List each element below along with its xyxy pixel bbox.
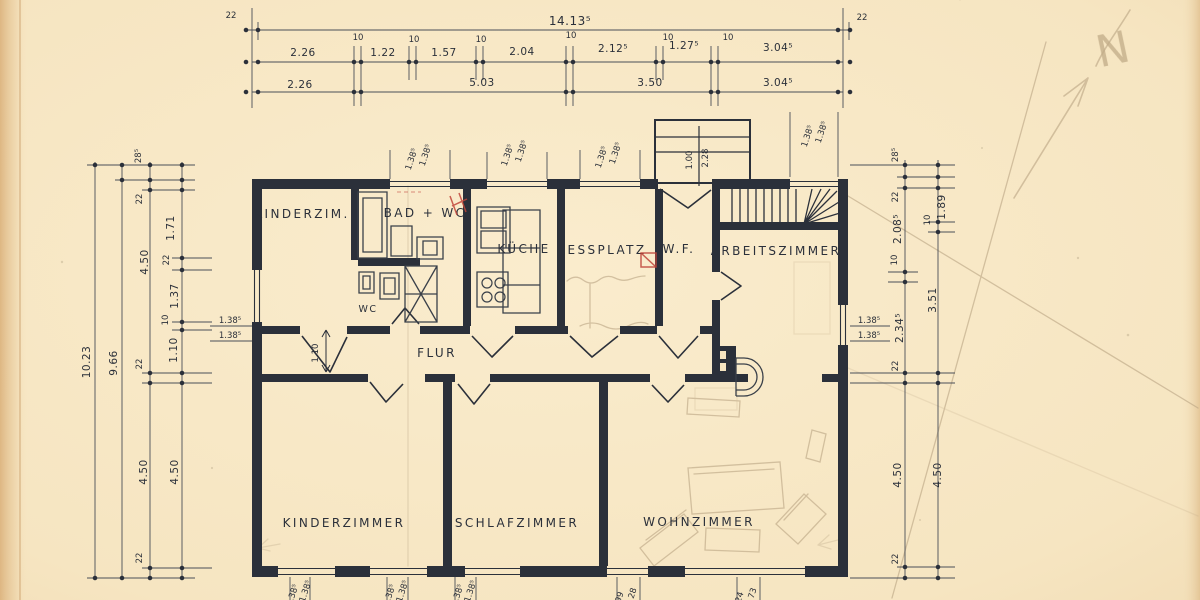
dim-row2-2: 1.57 <box>431 47 456 59</box>
scanned-floorplan-sheet: N 1.00 2.28 1.10 22 22 14.13⁵ 2.26 1.22 … <box>0 0 1200 600</box>
dim-row2-4: 2.12⁵ <box>598 43 628 55</box>
room-label-arbeitszimmer: ARBEITSZIMMER <box>711 244 841 258</box>
dim-right-e1: 22 <box>891 192 901 203</box>
dim-left-d2: 1.37 <box>169 283 181 308</box>
win-left-b: 1.38⁵ <box>219 331 241 341</box>
dim-right-f1: 10 <box>923 215 933 226</box>
room-label-kinderzim: KINDERZIM. <box>254 207 349 221</box>
dim-row2-0: 2.26 <box>290 47 315 59</box>
dim-row3-3: 3.04⁵ <box>763 77 793 89</box>
dim-row3-2: 3.50 <box>637 77 662 89</box>
dim-row2-1: 1.22 <box>370 47 395 59</box>
room-label-essplatz: ESSPLATZ <box>567 243 646 257</box>
room-label-wc: WC <box>358 304 377 315</box>
room-label-wf: W.F. <box>663 242 696 256</box>
dim-row2-3: 2.04 <box>509 46 534 58</box>
dim-right-e2: 2.08⁵ <box>892 214 904 244</box>
scan-edge-left <box>0 0 28 600</box>
porch-dim-b: 2.28 <box>701 149 711 168</box>
room-label-kueche: KÜCHE <box>497 240 550 256</box>
dim-row3-1: 5.03 <box>469 77 494 89</box>
dim-right-f0: 1.89 <box>936 194 948 219</box>
dim-right-e5: 22 <box>891 361 901 372</box>
dim-left-d4: 1.10 <box>168 337 180 362</box>
dim-row3-0: 2.26 <box>287 79 312 91</box>
dim-ten-3: 10 <box>566 31 577 41</box>
room-label-flur: FLUR <box>417 346 457 360</box>
dim-row2-6: 3.04⁵ <box>763 42 793 54</box>
dim-right-e6: 4.50 <box>892 462 904 487</box>
dim-row2-5: 1.27⁵ <box>669 40 699 52</box>
dim-ten-0: 10 <box>353 33 364 43</box>
dim-ten-5: 10 <box>723 33 734 43</box>
room-label-schlafzimmer: SCHLAFZIMMER <box>455 516 579 530</box>
flur-clearance-label: 1.10 <box>311 344 321 363</box>
dim-left-total: 10.23 <box>81 346 93 379</box>
dim-right-e7: 22 <box>891 554 901 565</box>
dim-ten-1: 10 <box>409 35 420 45</box>
floorplan-svg: N 1.00 2.28 1.10 22 22 14.13⁵ 2.26 1.22 … <box>0 0 1200 600</box>
dim-left-c1: 22 <box>135 194 145 205</box>
dim-right-e3: 10 <box>890 255 900 266</box>
dim-ten-4: 10 <box>663 33 674 43</box>
dim-right-e4: 2.34⁵ <box>894 313 906 343</box>
porch-dim-a: 1.00 <box>685 151 695 170</box>
win-right-a: 1.38⁵ <box>858 316 880 326</box>
dim-left-c3: 22 <box>135 359 145 370</box>
dim-left-d5: 4.50 <box>169 459 181 484</box>
scan-edge-left-line <box>19 0 21 600</box>
dim-right-f3: 4.50 <box>932 462 944 487</box>
dim-left-inner: 9.66 <box>108 350 120 375</box>
dim-ten-2: 10 <box>476 35 487 45</box>
dim-left-d0: 1.71 <box>165 215 177 240</box>
dim-left-c2: 4.50 <box>139 249 151 274</box>
dim-left-c4: 4.50 <box>138 459 150 484</box>
dim-wall-right: 22 <box>857 13 868 23</box>
dim-right-e0: 28⁵ <box>891 148 901 162</box>
win-left-a: 1.38⁵ <box>219 316 241 326</box>
dim-left-d1: 22 <box>162 255 172 266</box>
dim-right-f2: 3.51 <box>927 287 939 312</box>
win-right-b: 1.38⁵ <box>858 331 880 341</box>
dim-left-c0: 28⁵ <box>134 149 144 163</box>
room-label-wohnzimmer: WOHNZIMMER <box>643 515 755 529</box>
dim-total-width: 14.13⁵ <box>549 14 591 28</box>
room-label-kinderzimmer: KINDERZIMMER <box>283 516 406 530</box>
dim-wall-left: 22 <box>226 11 237 21</box>
dim-left-c5: 22 <box>135 553 145 564</box>
dim-left-d3: 10 <box>161 315 171 326</box>
